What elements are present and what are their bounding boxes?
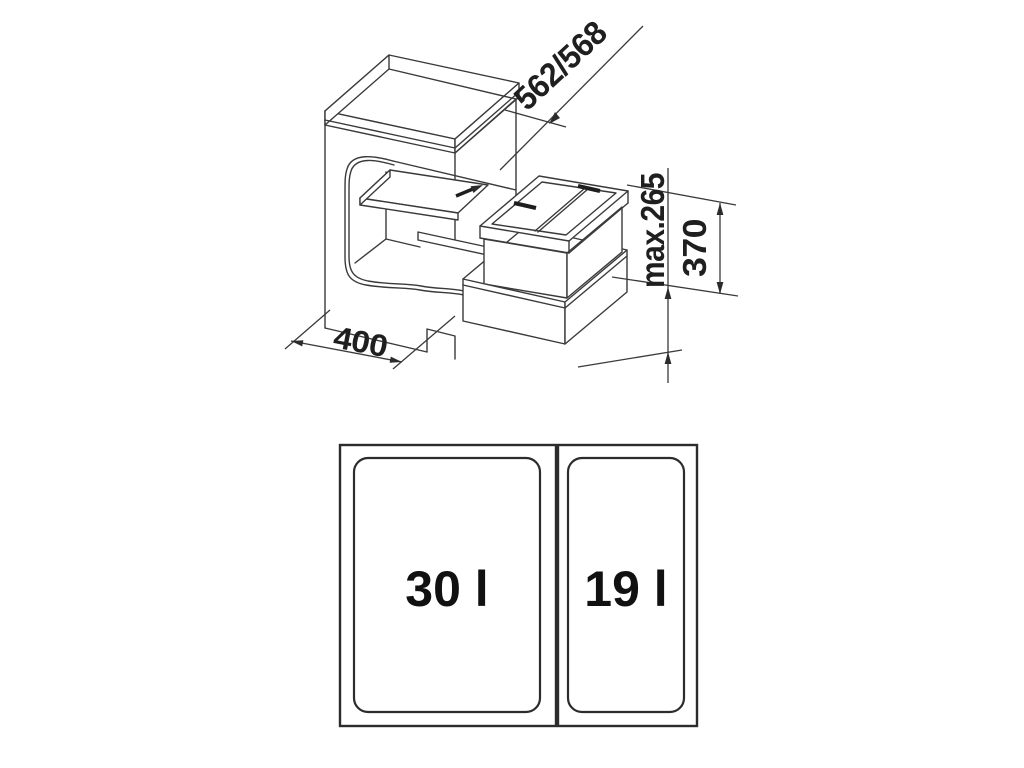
platform-lid: [360, 170, 488, 220]
bin-19l-capacity-label: 19 l: [584, 561, 667, 617]
max-height-arrowhead-lower: [665, 352, 672, 364]
width-extension-left: [285, 310, 330, 349]
width-arrowhead-left: [291, 340, 303, 346]
cabinet-floor-back-junction: [386, 239, 420, 247]
cabinet-drawing: 562/568 400 370 max.265: [285, 14, 738, 383]
width-dimension-label: 400: [331, 320, 391, 365]
width-arrowhead-right: [390, 357, 402, 363]
bin-30l-capacity-label: 30 l: [405, 561, 488, 617]
dimension-bin-height: 370: [612, 185, 738, 296]
depth-dimension-label: 562/568: [507, 14, 614, 118]
bins-top-view: 30 l 19 l: [340, 445, 697, 726]
dimension-depth: 562/568: [500, 14, 643, 170]
countertop: [325, 55, 519, 153]
bin-height-arrowhead-top: [717, 203, 724, 215]
dimension-width: 400: [285, 310, 455, 369]
plinth-notch: [427, 329, 455, 359]
screenshot-canvas: 562/568 400 370 max.265: [0, 0, 1024, 768]
max-height-dimension-label: max.265: [634, 173, 671, 288]
waste-bin-technical-diagram: 562/568 400 370 max.265: [0, 0, 1024, 768]
cabinet-floor-left-junction: [355, 239, 386, 263]
width-extension-right: [393, 316, 455, 369]
bin-height-dimension-label: 370: [676, 219, 713, 277]
waste-bin-assembly: [463, 176, 628, 344]
depth-arrowhead: [549, 112, 560, 124]
bin-height-arrowhead-bottom: [717, 282, 724, 294]
